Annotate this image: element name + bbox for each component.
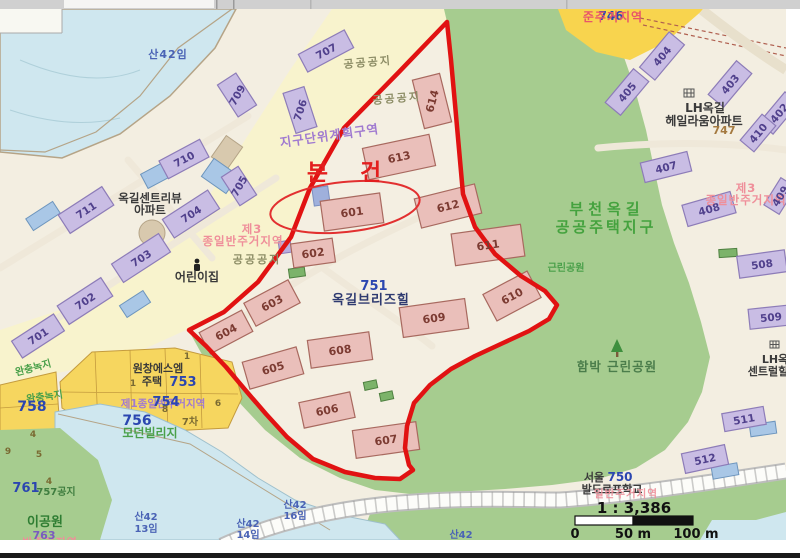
parcel-digit: 4 xyxy=(30,430,36,440)
label-san42im: 산42임 xyxy=(148,47,188,61)
label-heilaum-1: LH옥길 xyxy=(685,100,725,115)
label-wonchang-1: 원창에스엠 xyxy=(133,361,184,375)
right-margin xyxy=(786,9,800,558)
parcel-digit: 8 xyxy=(162,405,168,415)
label-san42-13-2: 13임 xyxy=(134,522,157,535)
playground xyxy=(288,267,305,278)
label-san42-plain: 산42 xyxy=(449,528,472,541)
label-758: 758 xyxy=(17,399,46,415)
parcel-digit: 9 xyxy=(5,447,11,457)
map-sheet-corner xyxy=(0,9,62,33)
label-waldorf-750: 750 xyxy=(607,470,632,484)
scale-bar-black xyxy=(633,516,693,525)
scale-bar-white xyxy=(575,516,633,525)
parcel-digit: 5 xyxy=(36,450,42,460)
label-san42-13-1: 산42 xyxy=(134,510,157,523)
label-756: 756 xyxy=(122,413,151,429)
label-public-open-c: 공공공지 xyxy=(233,252,281,266)
label-7cha: 7차 xyxy=(182,415,199,428)
label-747: 747 xyxy=(713,124,736,137)
scale-tick-0: 0 xyxy=(570,527,579,542)
top-chrome-divider xyxy=(566,0,568,9)
parcel-digit: 1 xyxy=(130,379,136,389)
scale-tick-100: 100 m xyxy=(673,527,718,542)
map-viewport: 산42임 지구단위계획구역 공공공지 공공공지 공공공지 본 건 746 준주거… xyxy=(0,0,800,558)
label-san42-16-1: 산42 xyxy=(283,498,306,511)
label-bucheon-1: 부천옥길 xyxy=(569,200,644,218)
playground xyxy=(719,248,738,257)
parcel-digit: 4 xyxy=(46,477,52,487)
label-public-757: 757공지 xyxy=(36,485,75,498)
parcel-digit: 6 xyxy=(215,399,221,409)
label-bucheon-2: 공공주택지구 xyxy=(556,218,657,236)
label-child-park: 이공원 xyxy=(27,514,63,530)
map-canvas: 산42임 지구단위계획구역 공공공지 공공공지 공공공지 본 건 746 준주거… xyxy=(0,0,800,558)
top-chrome-divider xyxy=(216,0,218,9)
label-761: 761 xyxy=(12,481,39,496)
scale-tick-50: 50 m xyxy=(615,527,651,542)
top-chrome-tab xyxy=(64,0,214,8)
label-509: 509 xyxy=(760,311,783,325)
label-san42-16-2: 16임 xyxy=(283,509,306,522)
parcel-digit: 1 xyxy=(184,352,190,362)
label-neighborhood-park: 근린공원 xyxy=(548,261,585,274)
top-chrome-divider xyxy=(310,0,312,9)
top-chrome-divider xyxy=(233,0,235,9)
label-hambak-park: 함박 근린공원 xyxy=(577,359,657,374)
label-breezehill: 옥길브리즈힐 xyxy=(332,292,410,308)
label-wonchang-2: 주택 xyxy=(142,374,162,388)
subject-marker: 본 건 xyxy=(307,160,393,186)
label-type3-a2: 종일반주거지역 xyxy=(202,234,283,248)
label-san42-14-1: 산42 xyxy=(236,517,259,530)
bottom-edge-bar xyxy=(0,553,800,558)
label-waldorf-1: 서울 xyxy=(584,470,604,484)
scale-ratio: 1 : 3,386 xyxy=(597,499,671,517)
label-semi-residential: 준주거지역 xyxy=(583,9,643,24)
bottom-margin xyxy=(0,540,800,553)
label-san42-14-2: 14임 xyxy=(236,528,259,541)
label-wonchang-753: 753 xyxy=(169,375,196,390)
label-central-2: 센트럴힐 xyxy=(748,364,788,378)
label-daycare: 어린이집 xyxy=(175,269,219,284)
label-centreview-2: 아파트 xyxy=(134,203,166,217)
label-breezehill-no: 751 xyxy=(360,279,387,294)
